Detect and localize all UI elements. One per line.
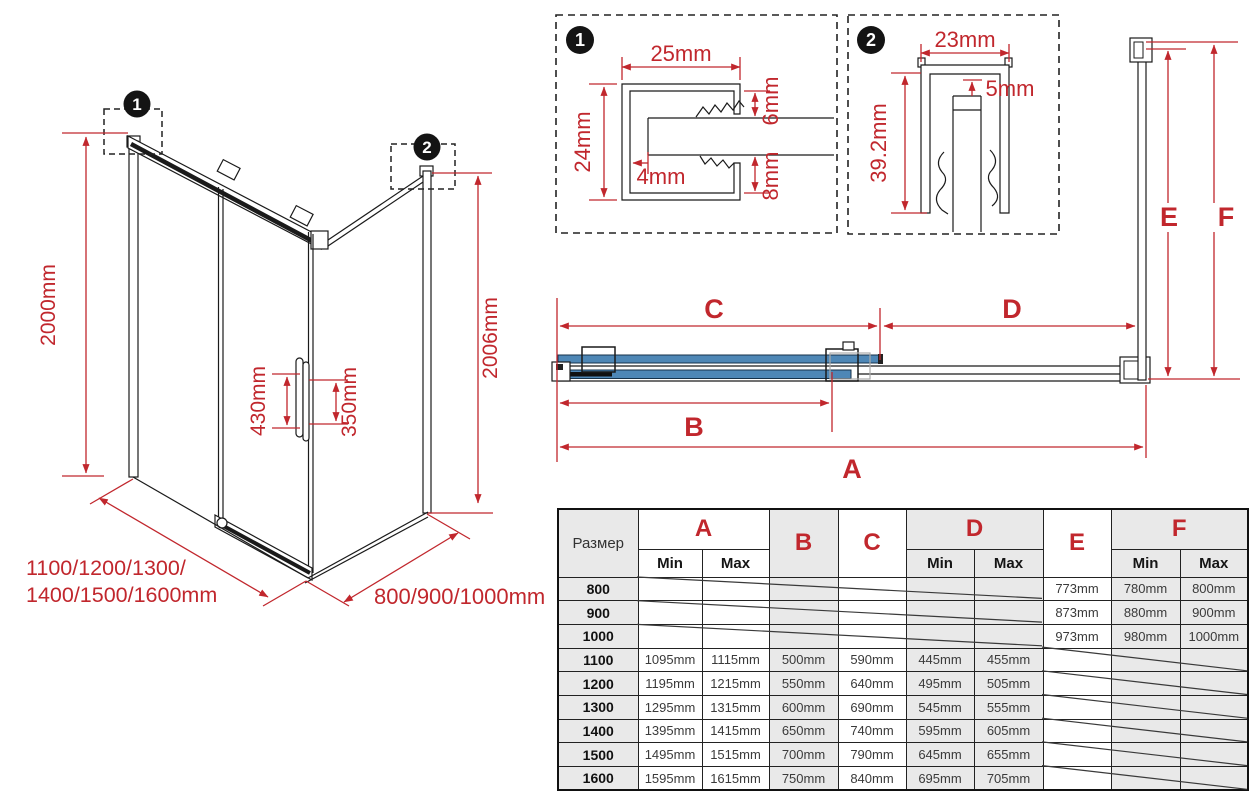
plan-dim-a: A: [842, 454, 862, 484]
dim-width-line2: 1400/1500/1600mm: [26, 583, 217, 607]
cell-a-max: 1415mm: [702, 719, 769, 743]
isometric-view: 1 2 2000mm 2006mm 430mm 350mm 1100/1200/…: [26, 91, 545, 610]
dim-depth: 800/900/1000mm: [374, 584, 545, 609]
cell-d-min: 695mm: [906, 767, 974, 791]
cell-f-max: [1180, 648, 1248, 672]
cell-c: [838, 601, 906, 625]
plan-dim-d: D: [1002, 294, 1022, 324]
cell-f-min: 780mm: [1111, 577, 1180, 601]
row-size: 1200: [558, 672, 638, 696]
cell-e: [1043, 767, 1111, 791]
detail-1-dim-inset: 4mm: [637, 164, 686, 189]
a-max-header: Max: [702, 549, 769, 577]
table-row: 1400 1395mm 1415mm 650mm 740mm 595mm 605…: [558, 719, 1248, 743]
table-row: 1200 1195mm 1215mm 550mm 640mm 495mm 505…: [558, 672, 1248, 696]
cell-a-max: 1315mm: [702, 695, 769, 719]
cell-d-max: [974, 601, 1043, 625]
cell-f-max: [1180, 672, 1248, 696]
cell-d-max: 655mm: [974, 743, 1043, 767]
cell-c: 840mm: [838, 767, 906, 791]
size-column-header: Размер: [558, 509, 638, 577]
cell-d-min: [906, 624, 974, 648]
cell-e: [1043, 719, 1111, 743]
d-max-header: Max: [974, 549, 1043, 577]
detail-1-dim-width: 25mm: [650, 41, 711, 66]
cell-b: [769, 577, 838, 601]
plan-view: C D B A E F: [552, 38, 1240, 484]
cell-f-max: 900mm: [1180, 601, 1248, 625]
table-row: 1000 973mm 980mm 1000mm: [558, 624, 1248, 648]
row-size: 900: [558, 601, 638, 625]
cell-d-min: 595mm: [906, 719, 974, 743]
cell-e: [1043, 648, 1111, 672]
size-table: Размер A B C D E F Min Max Min Max Min M…: [557, 508, 1249, 791]
cell-d-min: [906, 601, 974, 625]
detail-1-dim-top-gap: 6mm: [758, 77, 783, 126]
detail-2-dim-width: 23mm: [934, 27, 995, 52]
cell-a-min: [638, 624, 702, 648]
cell-f-max: [1180, 719, 1248, 743]
cell-a-min: [638, 601, 702, 625]
col-group-e: E: [1043, 509, 1111, 577]
f-max-header: Max: [1180, 549, 1248, 577]
cell-a-max: 1215mm: [702, 672, 769, 696]
col-group-c: C: [838, 509, 906, 577]
cell-f-min: 980mm: [1111, 624, 1180, 648]
dim-height-right: 2006mm: [479, 297, 502, 379]
cell-e: 873mm: [1043, 601, 1111, 625]
table-row: 1500 1495mm 1515mm 700mm 790mm 645mm 655…: [558, 743, 1248, 767]
cell-a-min: 1095mm: [638, 648, 702, 672]
cell-b: 500mm: [769, 648, 838, 672]
cell-a-min: 1395mm: [638, 719, 702, 743]
cell-e: [1043, 695, 1111, 719]
cell-d-min: 445mm: [906, 648, 974, 672]
plan-dim-e: E: [1160, 202, 1178, 232]
detail-2-dim-height: 39.2mm: [866, 103, 891, 182]
a-min-header: Min: [638, 549, 702, 577]
d-min-header: Min: [906, 549, 974, 577]
cell-d-max: [974, 624, 1043, 648]
cell-a-max: [702, 577, 769, 601]
cell-f-max: [1180, 695, 1248, 719]
cell-c: [838, 624, 906, 648]
cell-a-max: 1115mm: [702, 648, 769, 672]
cell-f-max: 800mm: [1180, 577, 1248, 601]
detail-1-dim-height: 24mm: [570, 111, 595, 172]
cell-f-min: [1111, 767, 1180, 791]
cell-b: [769, 601, 838, 625]
dim-handle-height: 430mm: [247, 366, 270, 436]
side-panel: [1138, 40, 1146, 380]
cell-c: 690mm: [838, 695, 906, 719]
table-row: 800 773mm 780mm 800mm: [558, 577, 1248, 601]
cell-d-max: 605mm: [974, 719, 1043, 743]
cell-c: 790mm: [838, 743, 906, 767]
cell-a-min: 1595mm: [638, 767, 702, 791]
cell-d-min: 495mm: [906, 672, 974, 696]
table-row: 1100 1095mm 1115mm 500mm 590mm 445mm 455…: [558, 648, 1248, 672]
cell-a-min: 1295mm: [638, 695, 702, 719]
cell-b: 600mm: [769, 695, 838, 719]
cell-a-max: [702, 624, 769, 648]
cell-f-max: [1180, 743, 1248, 767]
cell-f-min: [1111, 672, 1180, 696]
fixed-panel-glass: [558, 355, 882, 363]
table-row: 900 873mm 880mm 900mm: [558, 601, 1248, 625]
row-size: 800: [558, 577, 638, 601]
cell-d-max: 705mm: [974, 767, 1043, 791]
cell-d-max: [974, 577, 1043, 601]
col-group-f: F: [1111, 509, 1248, 549]
cell-a-min: 1195mm: [638, 672, 702, 696]
detail-1-view: 1 25mm 24mm 4mm 6mm 8mm: [556, 15, 837, 233]
plan-dim-f: F: [1218, 202, 1235, 232]
cell-e: 773mm: [1043, 577, 1111, 601]
row-size: 1400: [558, 719, 638, 743]
cell-b: 700mm: [769, 743, 838, 767]
cell-b: 750mm: [769, 767, 838, 791]
dim-handle-inner: 350mm: [338, 367, 361, 437]
marker-1-number: 1: [132, 95, 141, 114]
cell-f-min: [1111, 743, 1180, 767]
row-size: 1100: [558, 648, 638, 672]
marker-2-number: 2: [422, 138, 431, 157]
cell-a-max: [702, 601, 769, 625]
cell-c: 740mm: [838, 719, 906, 743]
plan-dim-b: B: [684, 412, 704, 442]
cell-f-max: [1180, 767, 1248, 791]
dim-height-left: 2000mm: [37, 264, 60, 346]
cell-b: 550mm: [769, 672, 838, 696]
cell-c: 640mm: [838, 672, 906, 696]
detail-1-number: 1: [575, 30, 585, 50]
cell-a-max: 1615mm: [702, 767, 769, 791]
cell-e: 973mm: [1043, 624, 1111, 648]
dim-width-line1: 1100/1200/1300/: [26, 556, 186, 580]
cell-a-min: [638, 577, 702, 601]
cell-d-min: [906, 577, 974, 601]
cell-f-min: [1111, 695, 1180, 719]
detail-1-dim-bottom-gap: 8mm: [758, 152, 783, 201]
cell-f-min: 880mm: [1111, 601, 1180, 625]
cell-d-max: 455mm: [974, 648, 1043, 672]
row-size: 1000: [558, 624, 638, 648]
spec-sheet: 1 2 2000mm 2006mm 430mm 350mm 1100/1200/…: [0, 0, 1250, 800]
cell-f-max: 1000mm: [1180, 624, 1248, 648]
col-group-a: A: [638, 509, 769, 549]
table-row: 1600 1595mm 1615mm 750mm 840mm 695mm 705…: [558, 767, 1248, 791]
cell-f-min: [1111, 648, 1180, 672]
detail-2-view: 2 23mm 5mm 39.2mm: [848, 15, 1059, 234]
col-group-d: D: [906, 509, 1043, 549]
row-size: 1600: [558, 767, 638, 791]
cell-b: [769, 624, 838, 648]
cell-d-max: 555mm: [974, 695, 1043, 719]
cell-a-min: 1495mm: [638, 743, 702, 767]
cell-f-min: [1111, 719, 1180, 743]
cell-c: [838, 577, 906, 601]
detail-2-number: 2: [866, 30, 876, 50]
plan-dim-c: C: [704, 294, 724, 324]
cell-d-max: 505mm: [974, 672, 1043, 696]
row-size: 1300: [558, 695, 638, 719]
f-min-header: Min: [1111, 549, 1180, 577]
cell-c: 590mm: [838, 648, 906, 672]
col-group-b: B: [769, 509, 838, 577]
row-size: 1500: [558, 743, 638, 767]
table-row: 1300 1295mm 1315mm 600mm 690mm 545mm 555…: [558, 695, 1248, 719]
cell-e: [1043, 672, 1111, 696]
cell-a-max: 1515mm: [702, 743, 769, 767]
cell-e: [1043, 743, 1111, 767]
cell-d-min: 645mm: [906, 743, 974, 767]
cell-d-min: 545mm: [906, 695, 974, 719]
cell-b: 650mm: [769, 719, 838, 743]
detail-2-dim-top-gap: 5mm: [986, 76, 1035, 101]
